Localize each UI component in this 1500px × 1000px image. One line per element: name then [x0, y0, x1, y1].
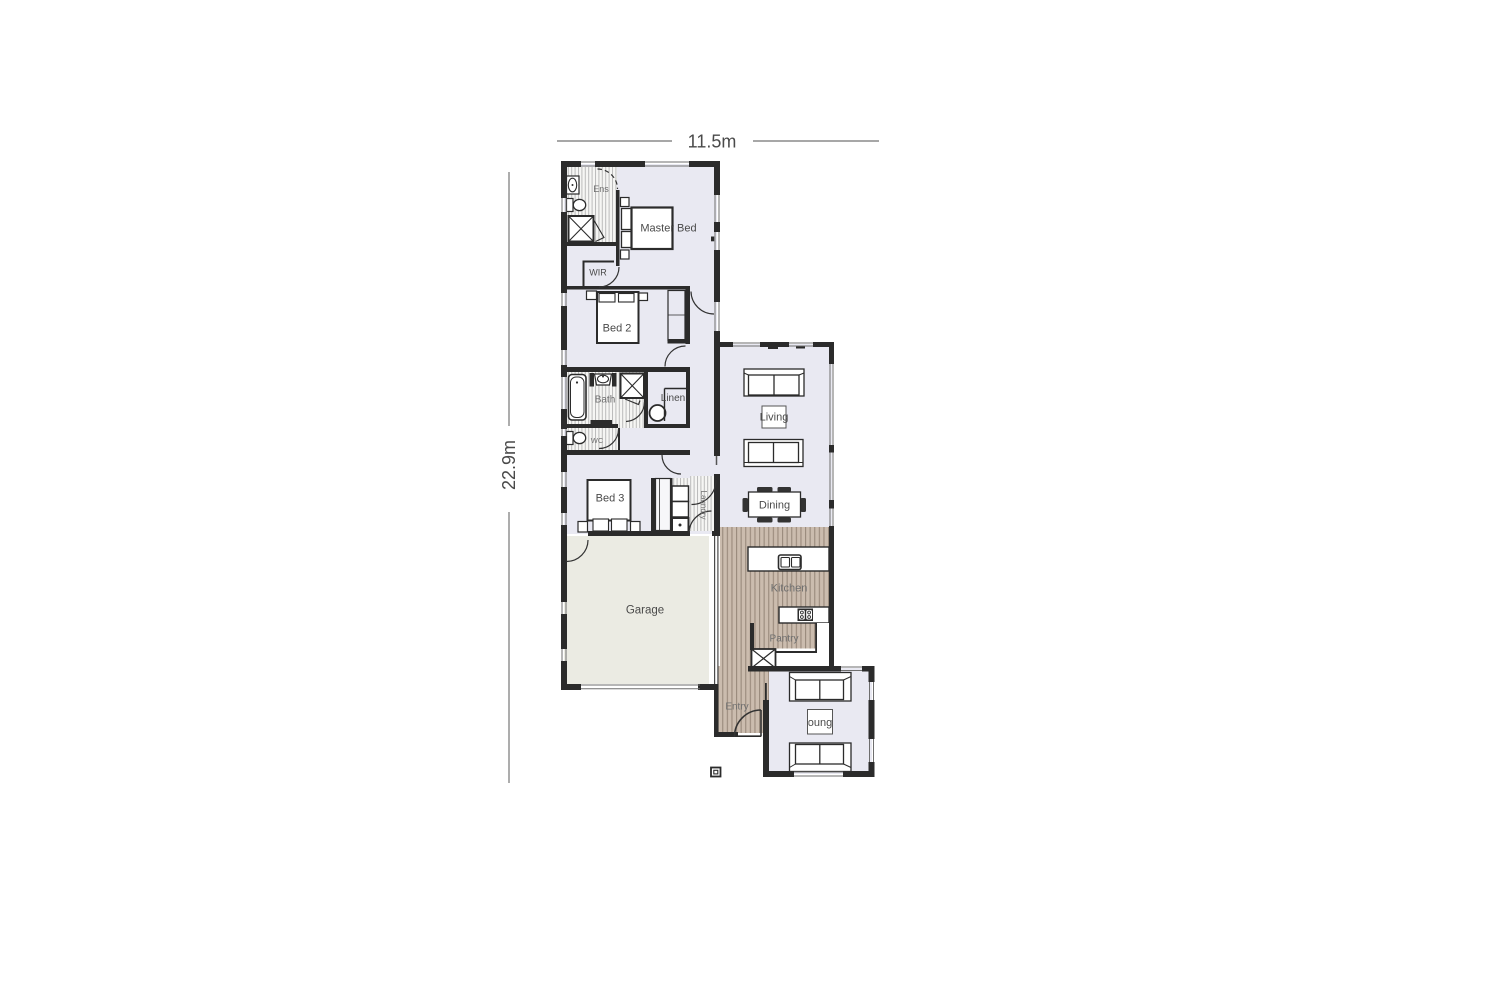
svg-text:Living: Living [760, 412, 789, 424]
svg-text:WIR: WIR [589, 268, 607, 278]
svg-text:Garage: Garage [626, 605, 664, 617]
svg-text:Linen: Linen [661, 393, 685, 404]
svg-text:Bath: Bath [595, 395, 616, 406]
svg-text:Pantry: Pantry [770, 634, 799, 645]
svg-text:Entry: Entry [725, 702, 748, 713]
svg-text:Bed 2: Bed 2 [603, 323, 632, 335]
svg-text:Dining: Dining [759, 500, 790, 512]
svg-text:Kitchen: Kitchen [771, 583, 808, 595]
svg-text:22.9m: 22.9m [499, 440, 519, 490]
svg-text:WC: WC [591, 436, 604, 445]
svg-text:Laundry: Laundry [699, 491, 708, 520]
svg-text:11.5m: 11.5m [688, 132, 737, 152]
svg-text:Bed 3: Bed 3 [596, 493, 625, 505]
svg-text:Master Bed: Master Bed [640, 223, 696, 235]
svg-text:Ens: Ens [593, 184, 609, 194]
